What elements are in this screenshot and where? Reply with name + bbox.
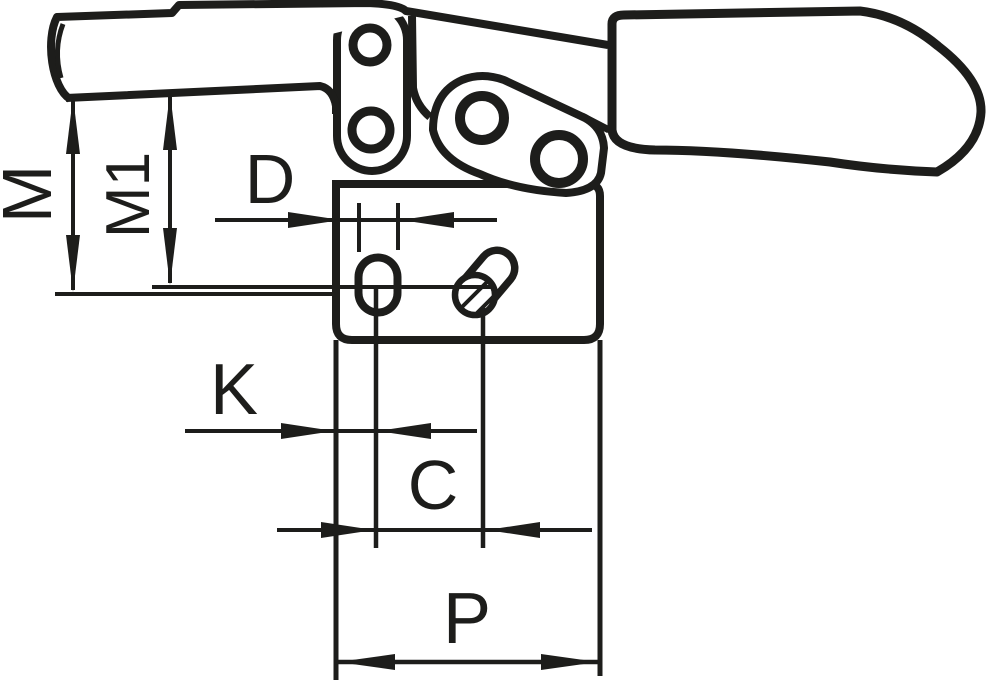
dimension-M1: M1	[94, 93, 177, 285]
arrowhead-right-icon	[321, 522, 374, 538]
dimension-label-d: D	[245, 140, 296, 218]
arrowhead-down-icon	[163, 228, 177, 285]
arrowhead-left-icon	[378, 423, 431, 439]
pivot-hole-plate-lower	[352, 111, 390, 149]
clamp-spindle-section	[455, 275, 498, 315]
arrowhead-up-icon	[163, 93, 177, 150]
pivot-hole-link-front	[460, 96, 504, 140]
dimension-P: P	[336, 579, 600, 670]
dimension-label-k: K	[210, 350, 258, 430]
clamp-handle	[612, 11, 981, 172]
arrowhead-left-icon	[338, 654, 395, 670]
dimension-M: M	[0, 97, 80, 292]
arrowhead-right-icon	[541, 654, 598, 670]
pivot-hole-plate-upper	[353, 28, 387, 62]
dimension-C: C	[277, 446, 592, 538]
arrowhead-up-icon	[66, 97, 80, 154]
dimension-K: K	[185, 350, 477, 439]
arrowhead-left-icon	[487, 522, 540, 538]
dimension-label-m1: M1	[94, 152, 163, 238]
dimension-label-c: C	[408, 446, 459, 524]
dimension-label-p: P	[443, 579, 491, 659]
clamp-arm-bottom-edge	[66, 86, 336, 114]
drawing-canvas: M M1 D K C P	[0, 0, 990, 682]
arrowhead-down-icon	[66, 235, 80, 292]
dimension-label-m: M	[0, 165, 66, 223]
toggle-clamp-technical-drawing: M M1 D K C P	[0, 0, 990, 682]
pivot-hole-link-rear	[535, 135, 583, 183]
clamp-handle-outline	[612, 11, 981, 172]
arrowhead-right-icon	[281, 423, 334, 439]
